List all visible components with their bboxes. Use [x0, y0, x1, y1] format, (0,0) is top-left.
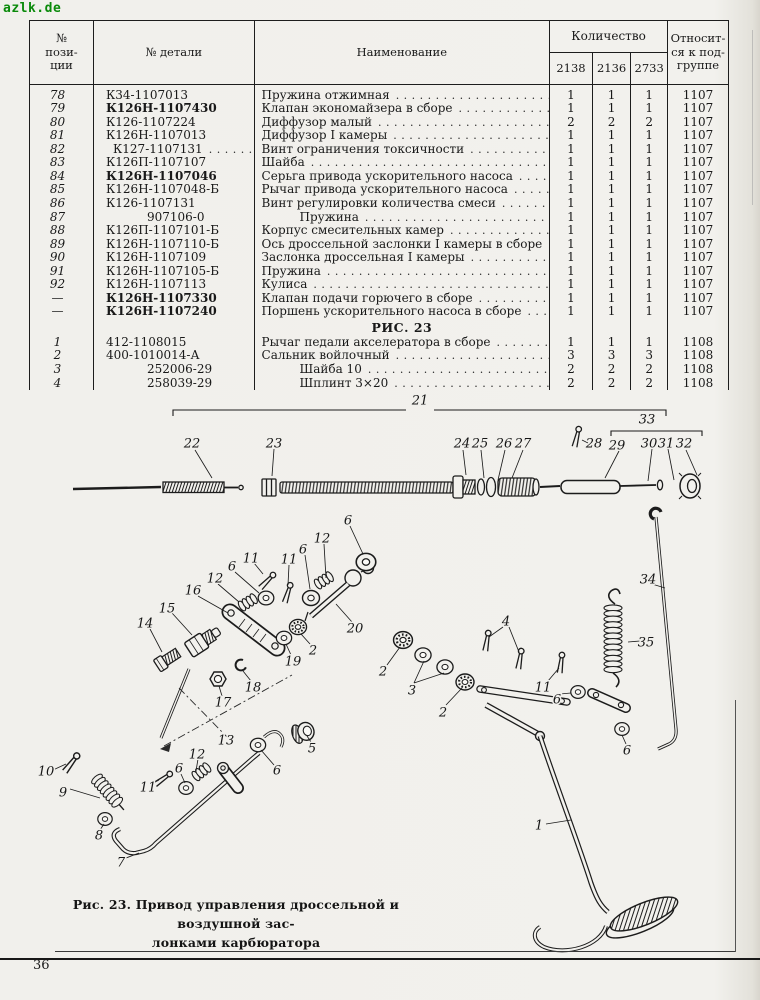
subgroup-cell: 1107: [667, 265, 728, 279]
part-row: —К126Н-1107330Клапан подачи горючего в с…: [30, 292, 729, 306]
position-cell: —: [30, 305, 94, 319]
qty-cell: 1: [550, 102, 593, 116]
position-cell: 79: [30, 102, 94, 116]
figure-section-row: РИС. 23: [30, 319, 729, 336]
qty-cell: 1: [631, 336, 668, 350]
part-label-10: 10: [38, 765, 55, 780]
qty-cell: 1: [631, 211, 668, 225]
subgroup-cell: 1107: [667, 278, 728, 292]
part-number-cell: 412-1108015: [94, 336, 255, 350]
part-label-2: 2: [378, 665, 387, 680]
subgroup-cell: 1107: [667, 251, 728, 265]
part-number-cell: [94, 319, 255, 336]
qty-cell: 1: [592, 156, 631, 170]
part-number-cell: К126Н-1107105-Б: [94, 265, 255, 279]
position-cell: 84: [30, 170, 94, 184]
name-cell: Винт регулировки количества смеси.......…: [254, 197, 550, 211]
part-label-26: 26: [495, 437, 513, 452]
part-label-11: 11: [140, 781, 157, 796]
part-label-25: 25: [471, 437, 489, 452]
part-label-6: 6: [344, 514, 352, 529]
part-label-1: 1: [535, 819, 543, 834]
part-row: 90К126Н-1107109Заслонка дроссельная I ка…: [30, 251, 729, 265]
name-cell: Рычаг педали акселератора в сборе.......…: [254, 336, 550, 350]
part-label-23: 23: [265, 437, 283, 452]
part-number-cell: 907106-0: [94, 211, 255, 225]
qty-cell: 1: [550, 305, 593, 319]
qty-cell: 1: [592, 292, 631, 306]
qty-cell: 2: [592, 363, 631, 377]
part-number-cell: К127-1107131............................…: [94, 143, 255, 157]
qty-cell: 1: [592, 170, 631, 184]
scan-edge-artifact: [752, 30, 753, 205]
name-cell: Серьга привода ускорительного насоса....…: [254, 170, 550, 184]
part-label-21: 21: [411, 394, 429, 409]
name-cell: Поршень ускорительного насоса в сборе...…: [254, 305, 550, 319]
part-label-2: 2: [308, 644, 317, 659]
qty-cell: 1: [592, 251, 631, 265]
dot-leader: ........................................…: [464, 144, 549, 156]
part-label-24: 24: [453, 437, 471, 452]
dot-leader: ........................................…: [490, 337, 549, 349]
subgroup-cell: 1107: [667, 183, 728, 197]
qty-cell: 1: [550, 278, 593, 292]
subgroup-cell: [667, 319, 728, 336]
qty-cell: 1: [631, 156, 668, 170]
qty-cell: 2: [631, 116, 668, 130]
col-header-part-number: № детали: [94, 21, 255, 85]
qty-cell: 1: [550, 197, 593, 211]
part-label-4: 4: [501, 615, 510, 630]
part-row: —К126Н-1107240Поршень ускорительного нас…: [30, 305, 729, 319]
qty-cell: 1: [631, 183, 668, 197]
qty-cell: 1: [550, 265, 593, 279]
part-label-18: 18: [245, 681, 262, 696]
part-label-35: 35: [638, 636, 655, 651]
name-cell: Рычаг привода ускорительного насоса.....…: [254, 183, 550, 197]
subgroup-cell: 1107: [667, 102, 728, 116]
part-number-cell: К126Н-1107240: [94, 305, 255, 319]
dot-leader: ........................................…: [496, 198, 549, 210]
name-cell: Кулиса..................................…: [254, 278, 550, 292]
position-cell: 90: [30, 251, 94, 265]
qty-cell: 1: [550, 224, 593, 238]
subgroup-cell: 1108: [667, 336, 728, 350]
part-label-17: 17: [215, 696, 232, 711]
page-frame-bottom-line: [55, 951, 735, 952]
subgroup-cell: 1107: [667, 156, 728, 170]
part-label-6: 6: [299, 543, 307, 558]
dot-leader: ........................................…: [305, 157, 549, 169]
part-row: 91К126Н-1107105-БПружина................…: [30, 265, 729, 279]
qty-cell: 1: [550, 211, 593, 225]
part-number-cell: К126-1107224: [94, 116, 255, 130]
part-label-3: 3: [408, 684, 416, 699]
qty-cell: 1: [631, 143, 668, 157]
part-number-cell: К126П-1107107: [94, 156, 255, 170]
col-header-subgroup: Относит- ся к под- группе: [667, 21, 728, 85]
part-row: 2400-1010014-АСальник войлочный.........…: [30, 349, 729, 363]
dot-leader: ........................................…: [359, 212, 549, 224]
part-row: 1412-1108015Рычаг педали акселератора в …: [30, 336, 729, 350]
part-labels-layer: 2133222324252627282930313261261111612161…: [38, 394, 693, 871]
section-title: РИС. 23: [254, 319, 550, 336]
dot-leader: ........................................…: [521, 306, 549, 318]
subgroup-cell: 1107: [667, 129, 728, 143]
part-row: 84К126Н-1107046Серьга привода ускоритель…: [30, 170, 729, 184]
part-label-27: 27: [514, 437, 532, 452]
part-row: 89К126Н-1107110-БОсь дроссельной заслонк…: [30, 238, 729, 252]
qty-cell: 1: [631, 305, 668, 319]
dot-leader: ........................................…: [465, 252, 550, 264]
qty-cell: 1: [550, 292, 593, 306]
part-row: 86К126-1107131Винт регулировки количеств…: [30, 197, 729, 211]
position-cell: 91: [30, 265, 94, 279]
col-header-model-2138: 2138: [550, 53, 593, 85]
qty-cell: 2: [550, 116, 593, 130]
part-label-8: 8: [95, 829, 103, 844]
name-cell: Корпус смесительных камер...............…: [254, 224, 550, 238]
col-header-model-2136: 2136: [592, 53, 631, 85]
parts-table: № пози- ции № детали Наименование Количе…: [29, 20, 729, 390]
part-label-6: 6: [273, 764, 281, 779]
col-header-model-2733: 2733: [631, 53, 668, 85]
dot-leader: ........................................…: [453, 103, 550, 115]
qty-cell: 1: [631, 197, 668, 211]
dot-leader: ........................................…: [473, 293, 550, 305]
name-cell: Пружина.................................…: [254, 211, 550, 225]
position-cell: 2: [30, 349, 94, 363]
subgroup-cell: 1108: [667, 349, 728, 363]
scanned-catalog-page: { "watermark": "azlk.de", "page_number":…: [0, 0, 760, 1000]
subgroup-cell: 1107: [667, 211, 728, 225]
part-row: 87907106-0Пружина.......................…: [30, 211, 729, 225]
part-label-5: 5: [308, 742, 316, 757]
part-row: 81К126Н-1107013Диффузор I камеры........…: [30, 129, 729, 143]
part-number-cell: К126Н-1107109: [94, 251, 255, 265]
qty-cell: 1: [592, 278, 631, 292]
qty-cell: 1: [550, 156, 593, 170]
subgroup-cell: 1107: [667, 116, 728, 130]
part-label-31: 31: [658, 437, 675, 452]
qty-cell: 2: [550, 363, 593, 377]
part-row: 79К126Н-1107430Клапан экономайзера в сбо…: [30, 102, 729, 116]
position-cell: 83: [30, 156, 94, 170]
part-label-28: 28: [585, 437, 603, 452]
part-number-cell: К126Н-1107113: [94, 278, 255, 292]
part-label-6: 6: [553, 693, 561, 708]
watermark-azlk: azlk.de: [3, 1, 61, 16]
part-label-34: 34: [640, 573, 657, 588]
qty-cell: 1: [550, 85, 593, 103]
part-label-19: 19: [285, 655, 302, 670]
qty-cell: 1: [631, 292, 668, 306]
qty-cell: [550, 319, 593, 336]
name-cell: Ось дроссельной заслонки I камеры в сбор…: [254, 238, 550, 252]
dot-leader: ........................................…: [307, 279, 549, 291]
qty-cell: 1: [631, 224, 668, 238]
subgroup-cell: 1107: [667, 143, 728, 157]
subgroup-cell: 1107: [667, 292, 728, 306]
part-row: 3252006-29Шайба 10......................…: [30, 363, 729, 377]
name-cell: Винт ограничения токсичности............…: [254, 143, 550, 157]
qty-cell: 1: [592, 238, 631, 252]
subgroup-cell: 1107: [667, 224, 728, 238]
part-row: 85К126Н-1107048-БРычаг привода ускорител…: [30, 183, 729, 197]
page-frame-right-line: [735, 700, 736, 952]
part-number-cell: 400-1010014-А: [94, 349, 255, 363]
dot-leader: ........................................…: [508, 184, 549, 196]
part-number-cell: 252006-29: [94, 363, 255, 377]
position-cell: 89: [30, 238, 94, 252]
figure-23-exploded-diagram: 2133222324252627282930313261261111612161…: [0, 388, 760, 968]
part-row: 92К126Н-1107113Кулиса...................…: [30, 278, 729, 292]
part-label-33: 33: [639, 413, 656, 428]
qty-cell: 1: [592, 183, 631, 197]
part-number-cell: К126Н-1107048-Б: [94, 183, 255, 197]
position-cell: 82: [30, 143, 94, 157]
name-cell: Пружина.................................…: [254, 265, 550, 279]
part-number-cell: К126П-1107101-Б: [94, 224, 255, 238]
dot-leader: ........................................…: [513, 171, 549, 183]
part-row: 80К126-1107224Диффузор малый............…: [30, 116, 729, 130]
qty-cell: 1: [631, 265, 668, 279]
part-label-12: 12: [314, 532, 331, 547]
linkage-parts-drawing: [62, 508, 676, 853]
part-label-16: 16: [185, 584, 202, 599]
dot-leader: ........................................…: [387, 130, 549, 142]
part-label-15: 15: [159, 602, 176, 617]
subgroup-cell: 1107: [667, 238, 728, 252]
cable-assembly-drawing: [73, 410, 702, 499]
qty-cell: 3: [550, 349, 593, 363]
qty-cell: 1: [550, 251, 593, 265]
qty-cell: 1: [631, 238, 668, 252]
position-cell: 1: [30, 336, 94, 350]
part-label-20: 20: [346, 622, 364, 637]
figure-caption-line1: Рис. 23. Привод управления дроссельной и…: [73, 897, 399, 931]
name-cell: Шайба 10................................…: [254, 363, 550, 377]
qty-cell: 1: [550, 143, 593, 157]
qty-cell: 3: [631, 349, 668, 363]
qty-cell: 1: [592, 336, 631, 350]
qty-cell: [592, 319, 631, 336]
qty-cell: [631, 319, 668, 336]
part-number-cell: К126Н-1107110-Б: [94, 238, 255, 252]
part-label-11: 11: [535, 681, 552, 696]
qty-cell: 1: [550, 238, 593, 252]
qty-cell: 1: [631, 102, 668, 116]
subgroup-cell: 1107: [667, 305, 728, 319]
position-cell: —: [30, 292, 94, 306]
position-cell: 88: [30, 224, 94, 238]
part-label-29: 29: [608, 439, 626, 454]
page-bottom-rule: [0, 958, 760, 960]
position-cell: 80: [30, 116, 94, 130]
qty-cell: 1: [631, 251, 668, 265]
position-cell: [30, 319, 94, 336]
part-label-6: 6: [623, 744, 631, 759]
name-cell: Клапан экономайзера в сборе.............…: [254, 102, 550, 116]
part-label-14: 14: [137, 617, 154, 632]
qty-cell: 1: [592, 305, 631, 319]
name-cell: Диффузор I камеры.......................…: [254, 129, 550, 143]
subgroup-cell: 1108: [667, 363, 728, 377]
qty-cell: 1: [592, 143, 631, 157]
dot-leader: ........................................…: [362, 364, 549, 376]
part-label-11: 11: [281, 553, 298, 568]
part-number-cell: К126Н-1107046: [94, 170, 255, 184]
position-cell: 87: [30, 211, 94, 225]
qty-cell: 3: [592, 349, 631, 363]
position-cell: 3: [30, 363, 94, 377]
part-label-30: 30: [641, 437, 658, 452]
position-cell: 85: [30, 183, 94, 197]
part-row: 82К127-1107131..........................…: [30, 143, 729, 157]
part-label-12: 12: [189, 748, 206, 763]
part-number-cell: К126-1107131: [94, 197, 255, 211]
dot-leader: ........................................…: [321, 266, 549, 278]
part-label-11: 11: [243, 552, 260, 567]
part-number-cell: К126Н-1107430: [94, 102, 255, 116]
part-label-22: 22: [183, 437, 201, 452]
part-label-12: 12: [207, 572, 224, 587]
qty-cell: 1: [592, 211, 631, 225]
dot-leader: ........................................…: [390, 90, 549, 102]
qty-cell: 1: [550, 183, 593, 197]
qty-cell: 1: [592, 85, 631, 103]
part-row: 83К126П-1107107Шайба....................…: [30, 156, 729, 170]
figure-caption-line2: лонками карбюратора: [152, 935, 321, 950]
part-label-9: 9: [59, 786, 67, 801]
part-number-cell: К126Н-1107330: [94, 292, 255, 306]
dot-leader: ........................................…: [444, 225, 549, 237]
qty-cell: 1: [592, 224, 631, 238]
dot-leader: ........................................…: [372, 117, 549, 129]
qty-cell: 1: [631, 129, 668, 143]
dot-leader: ........................................…: [203, 144, 254, 156]
qty-cell: 1: [631, 278, 668, 292]
part-row: 78К34-1107013Пружина отжимная...........…: [30, 85, 729, 103]
name-cell: Пружина отжимная........................…: [254, 85, 550, 103]
part-label-7: 7: [117, 856, 126, 871]
position-cell: 81: [30, 129, 94, 143]
position-cell: 86: [30, 197, 94, 211]
qty-cell: 1: [550, 336, 593, 350]
part-number-cell: К126Н-1107013: [94, 129, 255, 143]
qty-cell: 2: [631, 363, 668, 377]
qty-cell: 1: [550, 170, 593, 184]
qty-cell: 1: [592, 129, 631, 143]
qty-cell: 2: [592, 116, 631, 130]
qty-cell: 1: [592, 265, 631, 279]
name-cell: Заслонка дроссельная I камеры...........…: [254, 251, 550, 265]
page-number: 36: [33, 958, 50, 973]
part-number-cell: К34-1107013: [94, 85, 255, 103]
subgroup-cell: 1107: [667, 85, 728, 103]
col-header-quantity: Количество: [550, 21, 668, 53]
subgroup-cell: 1107: [667, 197, 728, 211]
position-cell: 92: [30, 278, 94, 292]
pedal-assembly-drawing: [480, 688, 681, 951]
qty-cell: 1: [592, 197, 631, 211]
part-row: 88К126П-1107101-БКорпус смесительных кам…: [30, 224, 729, 238]
part-label-32: 32: [676, 437, 693, 452]
qty-cell: 1: [631, 85, 668, 103]
dot-leader: ........................................…: [390, 350, 550, 362]
part-label-6: 6: [175, 762, 183, 777]
name-cell: Диффузор малый..........................…: [254, 116, 550, 130]
figure-caption: Рис. 23. Привод управления дроссельной и…: [30, 896, 442, 952]
qty-cell: 1: [550, 129, 593, 143]
name-cell: Сальник войлочный.......................…: [254, 349, 550, 363]
part-label-13: 13: [218, 734, 235, 749]
col-header-name: Наименование: [254, 21, 550, 85]
position-cell: 78: [30, 85, 94, 103]
subgroup-cell: 1107: [667, 170, 728, 184]
name-cell: Шайба...................................…: [254, 156, 550, 170]
name-cell: Клапан подачи горючего в сборе..........…: [254, 292, 550, 306]
qty-cell: 1: [592, 102, 631, 116]
part-label-6: 6: [228, 560, 236, 575]
qty-cell: 1: [631, 170, 668, 184]
part-label-2: 2: [438, 706, 447, 721]
col-header-position: № пози- ции: [30, 21, 94, 85]
